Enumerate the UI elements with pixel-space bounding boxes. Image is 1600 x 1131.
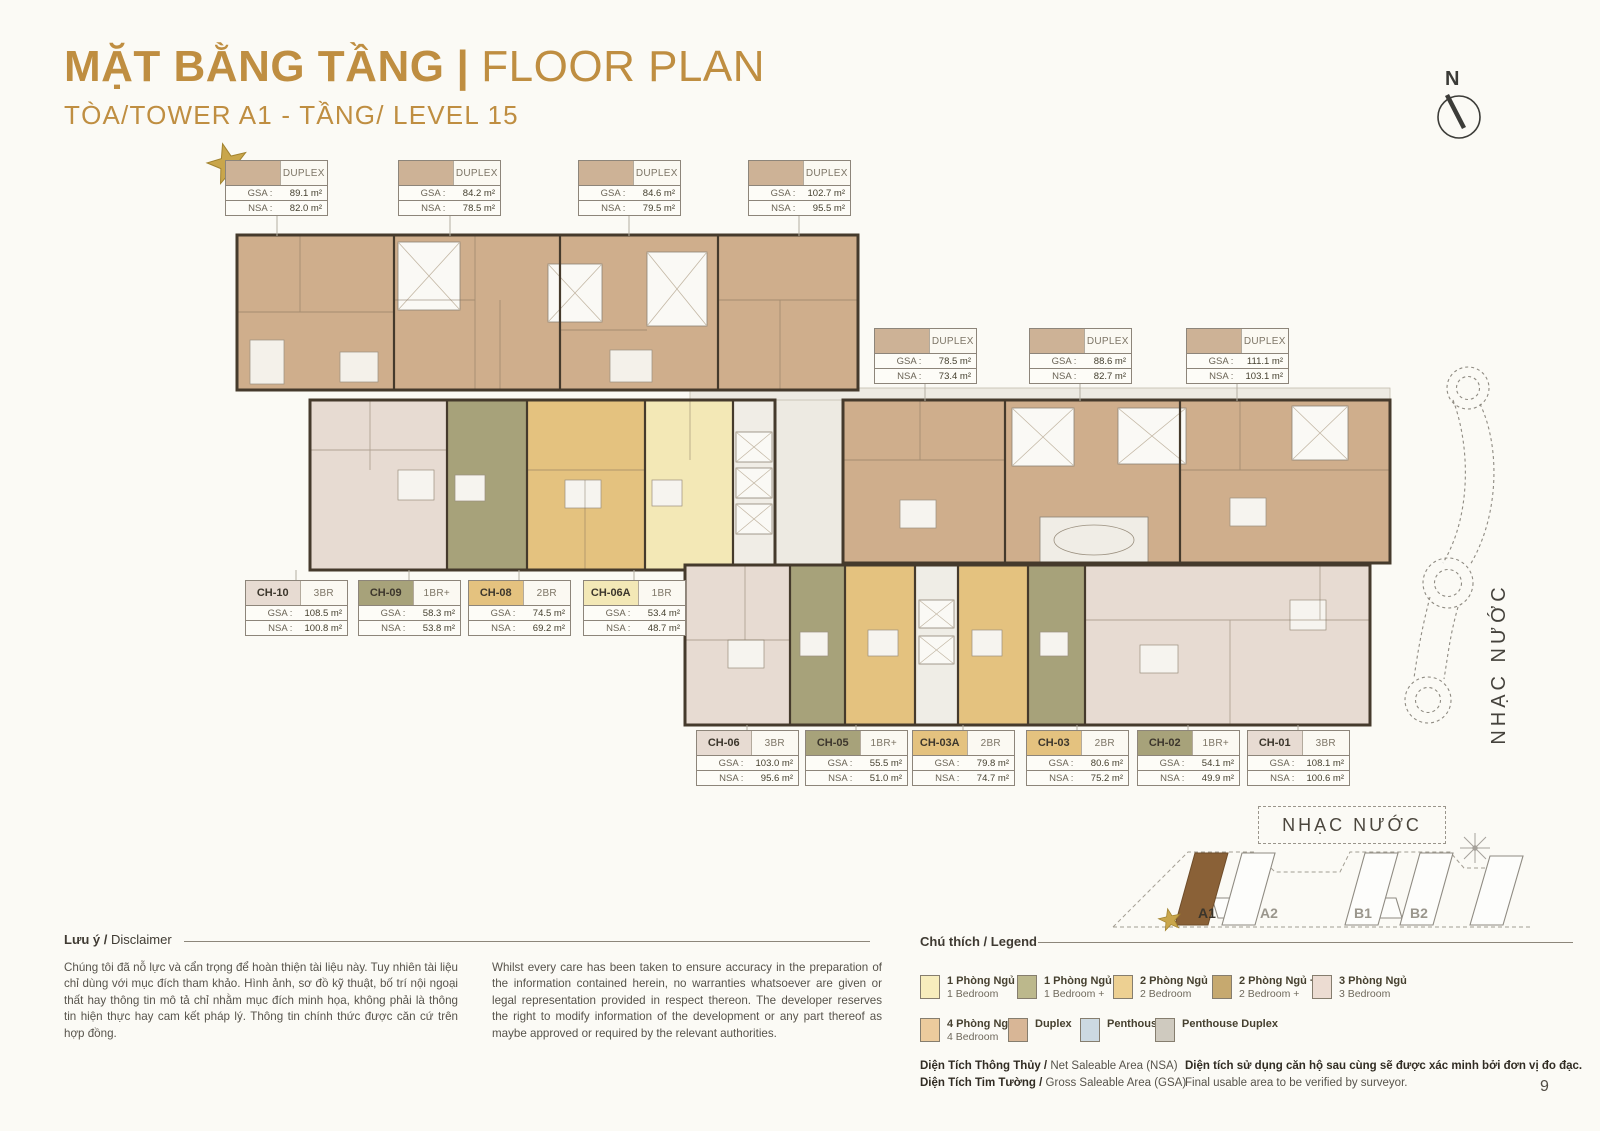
legend-heading: Chú thích / Legend [920, 934, 1037, 949]
legend-item-penthouse: Penthouse [1080, 1018, 1163, 1042]
unit-type: 3BR [301, 581, 347, 605]
gsa-value: 84.2 m² [445, 188, 500, 199]
legend-label-en: 1 Bedroom + [1044, 988, 1121, 1001]
legend-item-4br: 4 Phòng Ngủ4 Bedroom [920, 1018, 1015, 1044]
gsa-value: 80.6 m² [1073, 758, 1128, 769]
duplex-swatch [226, 161, 281, 185]
legend-label-en: 2 Bedroom + [1239, 988, 1316, 1001]
callout-duplex-6: DUPLEX GSA :88.6 m² NSA :82.7 m² [1029, 328, 1132, 384]
nsa-label: NSA : [913, 773, 959, 784]
nsa-label: NSA : [806, 773, 852, 784]
nsa-value: 82.0 m² [272, 203, 327, 214]
title-separator: | [456, 42, 469, 91]
unit-type: DUPLEX [1242, 329, 1288, 353]
gsa-value: 58.3 m² [405, 608, 460, 619]
nsa-value: 95.5 m² [795, 203, 850, 214]
duplex-swatch [579, 161, 634, 185]
duplex-swatch [1187, 329, 1242, 353]
legend-swatch [1312, 975, 1332, 999]
nsa-term-en: Net Saleable Area (NSA) [1050, 1060, 1177, 1072]
legend-swatch [1113, 975, 1133, 999]
legend-label-en: 4 Bedroom [947, 1031, 1015, 1044]
unit-id: CH-10 [246, 581, 301, 605]
title-vietnamese: MẶT BẰNG TẦNG [64, 42, 444, 91]
callout-ch-10: CH-103BR GSA :108.5 m² NSA :100.8 m² [245, 580, 348, 636]
legend-label-en: 3 Bedroom [1339, 988, 1407, 1001]
legend-label-en: 2 Bedroom [1140, 988, 1208, 1001]
gsa-label: GSA : [1138, 758, 1184, 769]
legend-item-penthouse-duplex: Penthouse Duplex [1155, 1018, 1278, 1042]
gsa-label: GSA : [1248, 758, 1294, 769]
nsa-value: 78.5 m² [445, 203, 500, 214]
callout-ch-06a: CH-06A1BR GSA :53.4 m² NSA :48.7 m² [583, 580, 686, 636]
gsa-value: 102.7 m² [795, 188, 850, 199]
verification-note: Diện tích sử dụng căn hộ sau cùng sẽ đượ… [1185, 1058, 1582, 1091]
unit-type: DUPLEX [1085, 329, 1131, 353]
nsa-label: NSA : [749, 203, 795, 214]
legend-label-vi: 2 Phòng Ngủ [1140, 975, 1208, 988]
legend-label-vi: 2 Phòng Ngủ + [1239, 975, 1316, 988]
nsa-value: 100.8 m² [292, 623, 347, 634]
unit-id: CH-06 [697, 731, 752, 755]
gsa-label: GSA : [1030, 356, 1076, 367]
unit-id: CH-06A [584, 581, 639, 605]
bottom-unit-band [685, 565, 1370, 725]
nsa-label: NSA : [399, 203, 445, 214]
unit-type: DUPLEX [634, 161, 680, 185]
top-duplex-band [237, 235, 858, 390]
legend-item-duplex: Duplex [1008, 1018, 1072, 1042]
disclaimer-text-vietnamese: Chúng tôi đã nỗ lực và cẩn trọng để hoàn… [64, 960, 458, 1042]
legend-swatch [920, 1018, 940, 1042]
unit-type: DUPLEX [454, 161, 500, 185]
nsa-value: 51.0 m² [852, 773, 907, 784]
site-map-tower-b1-label: B1 [1346, 905, 1380, 921]
unit-type: DUPLEX [281, 161, 327, 185]
nsa-value: 79.5 m² [625, 203, 680, 214]
gsa-label: GSA : [246, 608, 292, 619]
gsa-label: GSA : [584, 608, 630, 619]
gsa-value: 108.5 m² [292, 608, 347, 619]
gsa-label: GSA : [1187, 356, 1233, 367]
nsa-label: NSA : [1027, 773, 1073, 784]
unit-type: 2BR [524, 581, 570, 605]
nsa-value: 49.9 m² [1184, 773, 1239, 784]
gsa-term-en: Gross Saleable Area (GSA) [1046, 1077, 1187, 1089]
nsa-label: NSA : [469, 623, 515, 634]
disclaimer-text-english: Whilst every care has been taken to ensu… [492, 960, 882, 1042]
gsa-label: GSA : [1027, 758, 1073, 769]
disclaimer-heading-vi: Lưu ý / [64, 932, 107, 947]
nsa-label: NSA : [246, 623, 292, 634]
north-compass-icon [1438, 95, 1480, 138]
nsa-value: 100.6 m² [1294, 773, 1349, 784]
unit-id: CH-01 [1248, 731, 1303, 755]
gsa-value: 108.1 m² [1294, 758, 1349, 769]
legend-swatch [1017, 975, 1037, 999]
nsa-label: NSA : [226, 203, 272, 214]
nsa-value: 95.6 m² [743, 773, 798, 784]
legend-swatch [920, 975, 940, 999]
gsa-label: GSA : [875, 356, 921, 367]
unit-id: CH-03 [1027, 731, 1082, 755]
gsa-label: GSA : [806, 758, 852, 769]
nsa-term: Diện Tích Thông Thủy / [920, 1060, 1050, 1072]
nsa-label: NSA : [1138, 773, 1184, 784]
gsa-value: 78.5 m² [921, 356, 976, 367]
callout-ch-09: CH-091BR+ GSA :58.3 m² NSA :53.8 m² [358, 580, 461, 636]
legend-swatch [1080, 1018, 1100, 1042]
callout-ch-01: CH-013BR GSA :108.1 m² NSA :100.6 m² [1247, 730, 1350, 786]
nsa-label: NSA : [1248, 773, 1294, 784]
callout-duplex-3: DUPLEX GSA :84.6 m² NSA :79.5 m² [578, 160, 681, 216]
legend-label-vi: Duplex [1035, 1018, 1072, 1031]
water-feature-icon [1405, 367, 1494, 723]
callout-ch-03: CH-032BR GSA :80.6 m² NSA :75.2 m² [1026, 730, 1129, 786]
floor-plan-page: MẶT BẰNG TẦNG|FLOOR PLAN TÒA/TOWER A1 - … [0, 0, 1600, 1131]
unit-type: 3BR [1303, 731, 1349, 755]
nsa-value: 82.7 m² [1076, 371, 1131, 382]
nsa-value: 73.4 m² [921, 371, 976, 382]
disclaimer-rule [184, 941, 870, 942]
legend-label-vi: 4 Phòng Ngủ [947, 1018, 1015, 1031]
callout-duplex-1: DUPLEX GSA :89.1 m² NSA :82.0 m² [225, 160, 328, 216]
nsa-label: NSA : [875, 371, 921, 382]
unit-id: CH-09 [359, 581, 414, 605]
gsa-value: 84.6 m² [625, 188, 680, 199]
verification-note-en: Final usable area to be verified by surv… [1185, 1075, 1582, 1092]
unit-ch-01-area [1085, 565, 1370, 725]
water-feature-label: NHẠC NƯỚC [1488, 554, 1516, 774]
duplex-swatch [1030, 329, 1085, 353]
legend-swatch [1008, 1018, 1028, 1042]
gsa-value: 103.0 m² [743, 758, 798, 769]
gsa-label: GSA : [697, 758, 743, 769]
legend-heading-text: Chú thích / Legend [920, 934, 1037, 949]
callout-ch-05: CH-051BR+ GSA :55.5 m² NSA :51.0 m² [805, 730, 908, 786]
unit-type: 1BR+ [861, 731, 907, 755]
legend-swatch [1212, 975, 1232, 999]
site-map-tower-b2-label: B2 [1402, 905, 1436, 921]
unit-id: CH-05 [806, 731, 861, 755]
nsa-label: NSA : [697, 773, 743, 784]
nsa-label: NSA : [579, 203, 625, 214]
legend-item-2br: 2 Phòng Ngủ2 Bedroom [1113, 975, 1208, 1001]
unit-id: CH-08 [469, 581, 524, 605]
nsa-value: 75.2 m² [1073, 773, 1128, 784]
nsa-value: 48.7 m² [630, 623, 685, 634]
gsa-label: GSA : [399, 188, 445, 199]
unit-type: 1BR+ [1193, 731, 1239, 755]
nsa-value: 53.8 m² [405, 623, 460, 634]
nsa-value: 74.7 m² [959, 773, 1014, 784]
legend-rule [1038, 942, 1573, 943]
area-definitions: Diện Tích Thông Thủy / Net Saleable Area… [920, 1058, 1186, 1091]
page-number: 9 [1540, 1078, 1549, 1096]
gsa-label: GSA : [469, 608, 515, 619]
unit-type: 1BR+ [414, 581, 460, 605]
nsa-value: 69.2 m² [515, 623, 570, 634]
gsa-label: GSA : [913, 758, 959, 769]
duplex-swatch [399, 161, 454, 185]
disclaimer-heading-en: Disclaimer [107, 932, 171, 947]
legend-label-vi: 3 Phòng Ngủ [1339, 975, 1407, 988]
mid-unit-band [310, 400, 775, 570]
gsa-label: GSA : [359, 608, 405, 619]
gsa-label: GSA : [749, 188, 795, 199]
callout-ch-02: CH-021BR+ GSA :54.1 m² NSA :49.9 m² [1137, 730, 1240, 786]
gsa-label: GSA : [226, 188, 272, 199]
palm-decoration-icon [1460, 833, 1490, 863]
legend-label-en: 1 Bedroom [947, 988, 1015, 1001]
duplex-swatch [875, 329, 930, 353]
gsa-value: 53.4 m² [630, 608, 685, 619]
gsa-label: GSA : [579, 188, 625, 199]
callout-duplex-5: DUPLEX GSA :78.5 m² NSA :73.4 m² [874, 328, 977, 384]
nsa-label: NSA : [584, 623, 630, 634]
unit-type: 2BR [968, 731, 1014, 755]
gsa-value: 88.6 m² [1076, 356, 1131, 367]
title-english: FLOOR PLAN [481, 42, 765, 91]
unit-type: 3BR [752, 731, 798, 755]
site-map-tower-a1-label: A1 [1190, 905, 1224, 921]
legend-label-vi: 1 Phòng Ngủ + [1044, 975, 1121, 988]
callout-duplex-4: DUPLEX GSA :102.7 m² NSA :95.5 m² [748, 160, 851, 216]
page-title: MẶT BẰNG TẦNG|FLOOR PLAN [64, 42, 765, 92]
legend-label-vi: 1 Phòng Ngủ [947, 975, 1015, 988]
callout-ch-03a: CH-03A2BR GSA :79.8 m² NSA :74.7 m² [912, 730, 1015, 786]
gsa-value: 54.1 m² [1184, 758, 1239, 769]
nsa-label: NSA : [359, 623, 405, 634]
site-map-tower-a2-label: A2 [1252, 905, 1286, 921]
page-subtitle: TÒA/TOWER A1 - TẦNG/ LEVEL 15 [64, 100, 519, 131]
unit-type: 2BR [1082, 731, 1128, 755]
gsa-term: Diện Tích Tim Tường / [920, 1077, 1046, 1089]
unit-id: CH-03A [913, 731, 968, 755]
legend-item-2br-plus: 2 Phòng Ngủ +2 Bedroom + [1212, 975, 1316, 1001]
legend-item-1br-plus: 1 Phòng Ngủ +1 Bedroom + [1017, 975, 1121, 1001]
gsa-value: 79.8 m² [959, 758, 1014, 769]
disclaimer-heading: Lưu ý / Disclaimer [64, 932, 172, 947]
unit-type: DUPLEX [930, 329, 976, 353]
unit-type: DUPLEX [804, 161, 850, 185]
callout-ch-08: CH-082BR GSA :74.5 m² NSA :69.2 m² [468, 580, 571, 636]
callout-ch-06: CH-063BR GSA :103.0 m² NSA :95.6 m² [696, 730, 799, 786]
legend-label-vi: Penthouse Duplex [1182, 1018, 1278, 1031]
north-label: N [1445, 68, 1459, 91]
gsa-value: 89.1 m² [272, 188, 327, 199]
gsa-value: 74.5 m² [515, 608, 570, 619]
mid-duplex-band [843, 400, 1390, 563]
gsa-value: 55.5 m² [852, 758, 907, 769]
legend-swatch [1155, 1018, 1175, 1042]
site-map [1113, 833, 1530, 927]
verification-note-vi: Diện tích sử dụng căn hộ sau cùng sẽ đượ… [1185, 1058, 1582, 1075]
site-map-water-label: NHẠC NƯỚC [1258, 806, 1446, 844]
callout-duplex-7: DUPLEX GSA :111.1 m² NSA :103.1 m² [1186, 328, 1289, 384]
duplex-swatch [749, 161, 804, 185]
legend-item-3br: 3 Phòng Ngủ3 Bedroom [1312, 975, 1407, 1001]
nsa-label: NSA : [1030, 371, 1076, 382]
unit-type: 1BR [639, 581, 685, 605]
unit-id: CH-02 [1138, 731, 1193, 755]
callout-duplex-2: DUPLEX GSA :84.2 m² NSA :78.5 m² [398, 160, 501, 216]
nsa-label: NSA : [1187, 371, 1233, 382]
gsa-value: 111.1 m² [1233, 356, 1288, 367]
nsa-value: 103.1 m² [1233, 371, 1288, 382]
legend-item-1br: 1 Phòng Ngủ1 Bedroom [920, 975, 1015, 1001]
